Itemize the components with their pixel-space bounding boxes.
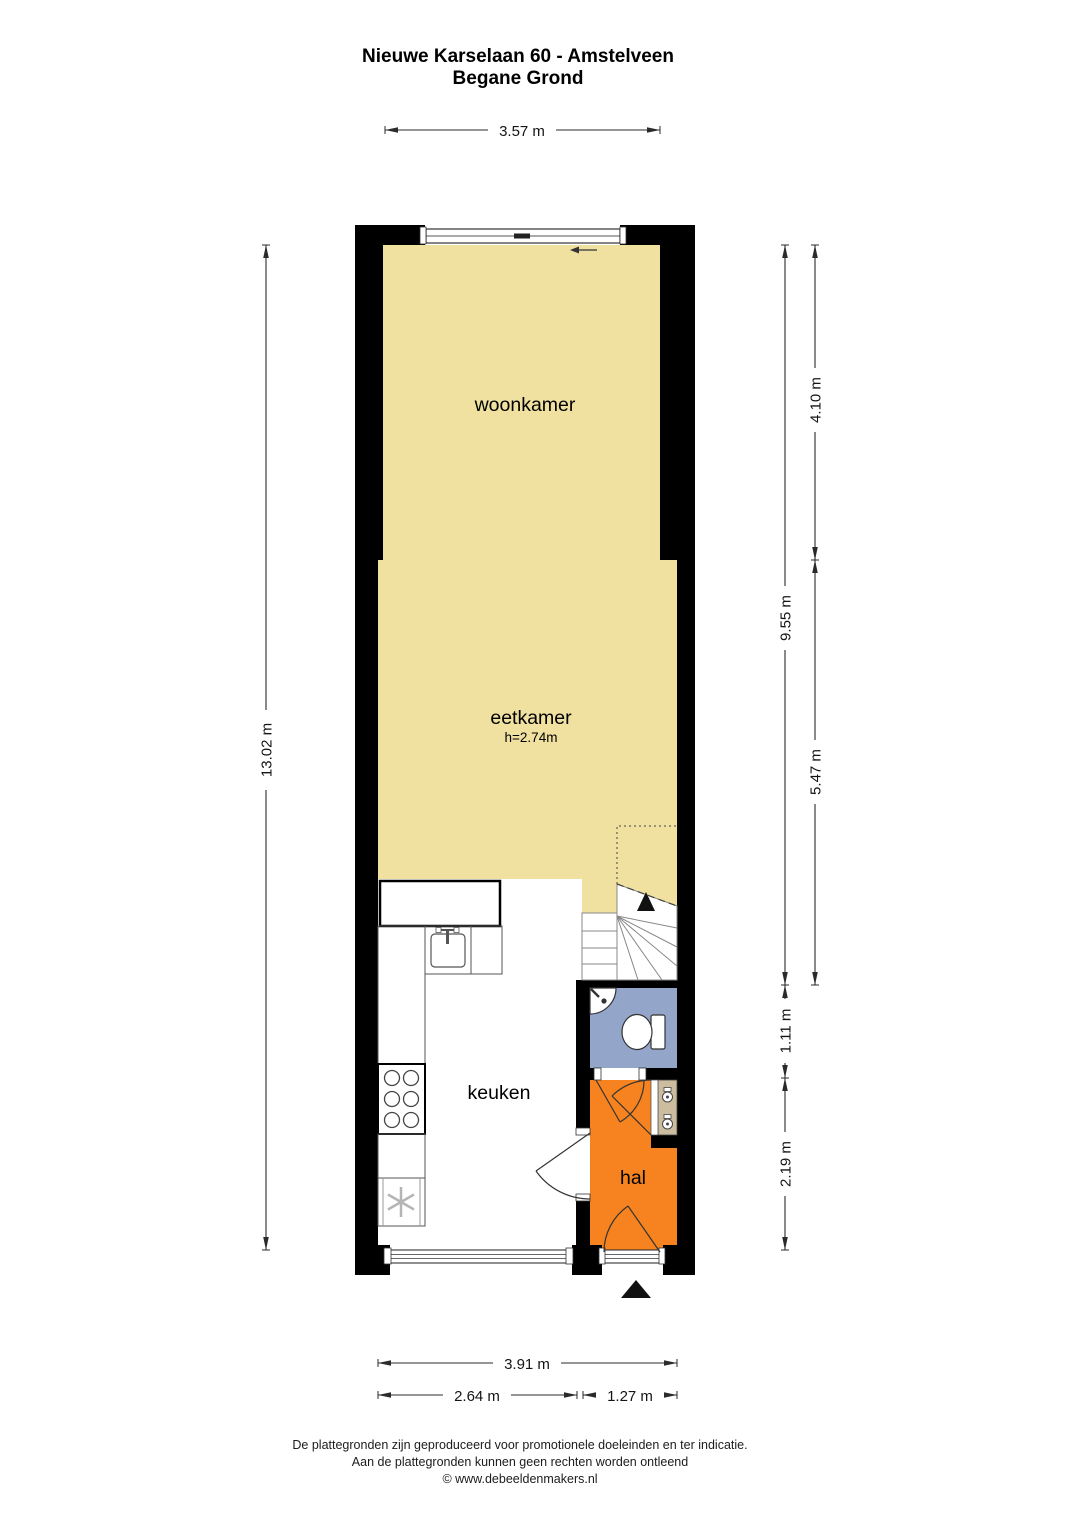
svg-text:5.47 m: 5.47 m [808,749,825,795]
copyright-line: © www.debeeldenmakers.nl [442,1472,597,1486]
page-title: Nieuwe Karselaan 60 - Amstelveen [362,46,674,67]
dimension-top-width: 3.57 m [385,123,660,140]
page-subtitle: Begane Grond [453,68,584,89]
dimension-right-lower: 5.47 m [808,560,825,985]
eetkamer-label: eetkamer [490,707,572,729]
svg-text:4.10 m: 4.10 m [808,377,825,423]
dimension-bottom-hal: 1.27 m [583,1388,677,1405]
front-door-sill [599,1248,665,1264]
dimension-right-upper: 4.10 m [808,245,825,560]
kitchen-counter-left [378,926,425,1064]
stove-icon [378,1064,425,1134]
kitchen-fixtures [378,881,502,1226]
hal-label: hal [620,1167,646,1189]
meter-cupboard [651,1080,677,1135]
svg-text:2.19 m: 2.19 m [778,1141,795,1187]
svg-text:3.91 m: 3.91 m [504,1356,550,1373]
dimension-left-total: 13.02 m [259,245,276,1250]
dimension-bottom-total: 3.91 m [378,1356,677,1373]
dimension-right-toilet: 1.11 m [778,985,795,1078]
kitchen-peninsula-counter [380,881,500,926]
kitchen-window [384,1248,573,1264]
keuken-label: keuken [468,1082,531,1104]
svg-text:1.27 m: 1.27 m [607,1388,653,1405]
svg-text:13.02 m: 13.02 m [259,723,276,777]
sink-icon [431,928,465,968]
kitchen-hall-door [536,1128,590,1201]
living-dining-floor [378,245,677,913]
svg-text:1.11 m: 1.11 m [778,1009,795,1054]
wc-icon [622,1015,665,1050]
svg-text:9.55 m: 9.55 m [778,595,795,641]
dimension-right-hal: 2.19 m [778,1078,795,1250]
floorplan-page: Nieuwe Karselaan 60 - Amstelveen Begane … [0,0,1080,1527]
entrance-arrow-icon [621,1280,651,1298]
eetkamer-ceiling-height: h=2.74m [505,730,558,745]
freezer-icon [378,1178,425,1226]
floor-plan: Nieuwe Karselaan 60 - Amstelveen Begane … [0,0,1080,1527]
disclaimer-line-1: De plattegronden zijn geproduceerd voor … [292,1438,747,1452]
svg-text:3.57 m: 3.57 m [499,123,545,140]
dimension-right-inner: 9.55 m [778,245,795,985]
disclaimer-line-2: Aan de plattegronden kunnen geen rechten… [352,1455,688,1469]
svg-text:2.64 m: 2.64 m [454,1388,500,1405]
dimension-bottom-keuken: 2.64 m [378,1388,577,1405]
woonkamer-label: woonkamer [474,394,576,416]
